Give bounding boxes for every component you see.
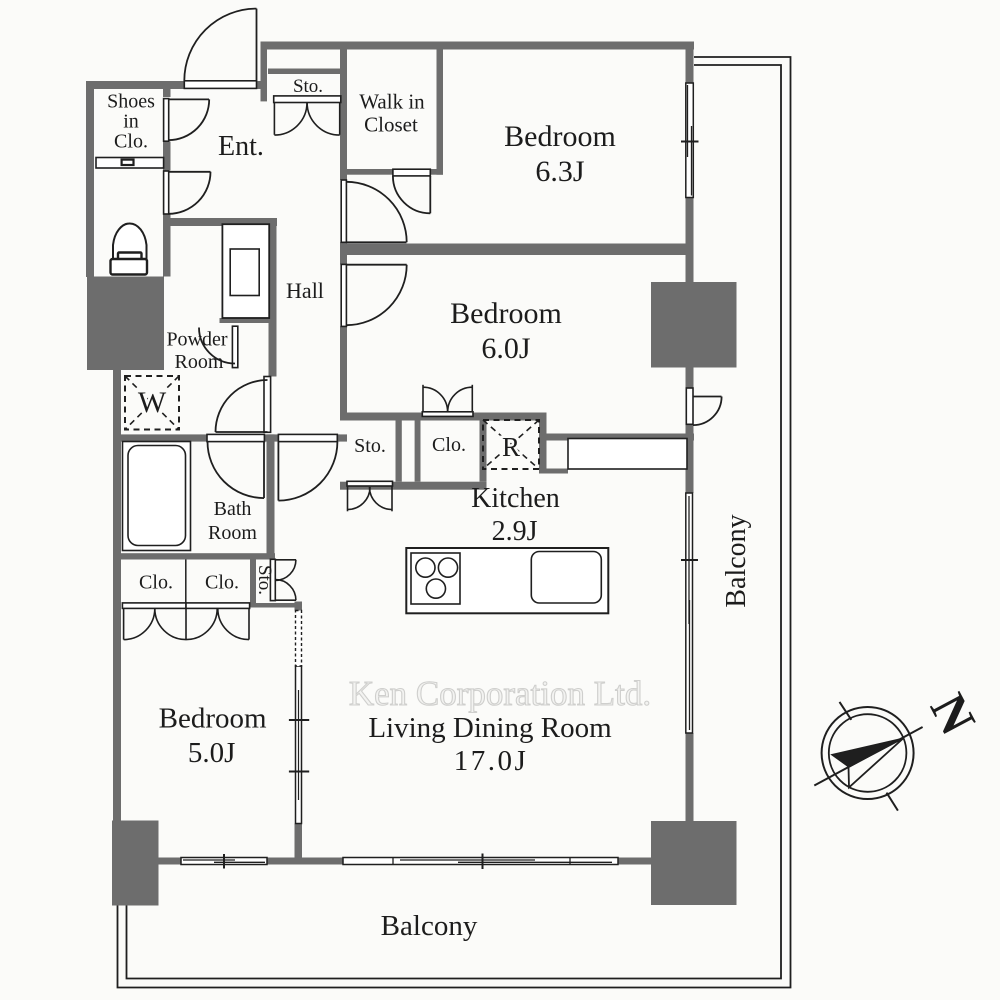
svg-text:5.0J: 5.0J: [188, 737, 236, 769]
svg-text:Sto.: Sto.: [293, 76, 323, 97]
svg-text:Bedroom: Bedroom: [450, 297, 562, 330]
svg-text:Ent.: Ent.: [218, 131, 264, 162]
svg-text:2.9J: 2.9J: [492, 516, 538, 547]
svg-text:Balcony: Balcony: [721, 514, 752, 607]
svg-text:Sto.: Sto.: [254, 565, 275, 595]
svg-text:Bedroom: Bedroom: [159, 703, 267, 735]
svg-text:Bedroom: Bedroom: [504, 120, 616, 153]
svg-text:Ken Corporation Ltd.: Ken Corporation Ltd.: [349, 674, 651, 713]
svg-text:Room: Room: [208, 522, 257, 544]
svg-text:17.0J: 17.0J: [454, 745, 529, 777]
svg-text:6.0J: 6.0J: [481, 332, 531, 365]
svg-text:R: R: [502, 432, 520, 462]
svg-text:in: in: [123, 111, 139, 133]
svg-text:Clo.: Clo.: [432, 434, 466, 456]
svg-text:Shoes: Shoes: [107, 91, 155, 113]
svg-text:Sto.: Sto.: [354, 435, 386, 457]
svg-text:6.3J: 6.3J: [535, 155, 585, 188]
svg-text:Closet: Closet: [364, 113, 418, 137]
svg-text:Hall: Hall: [286, 278, 324, 303]
svg-text:W: W: [138, 386, 167, 419]
svg-text:Bath: Bath: [214, 498, 252, 520]
svg-text:Clo.: Clo.: [205, 572, 239, 594]
svg-text:Powder: Powder: [166, 328, 227, 350]
svg-text:Kitchen: Kitchen: [471, 483, 560, 514]
svg-text:Clo.: Clo.: [114, 131, 148, 153]
svg-text:Clo.: Clo.: [139, 572, 173, 594]
svg-text:Living Dining Room: Living Dining Room: [368, 712, 612, 744]
svg-text:Balcony: Balcony: [381, 910, 478, 942]
svg-text:Room: Room: [175, 351, 224, 373]
svg-text:Walk in: Walk in: [359, 90, 425, 114]
